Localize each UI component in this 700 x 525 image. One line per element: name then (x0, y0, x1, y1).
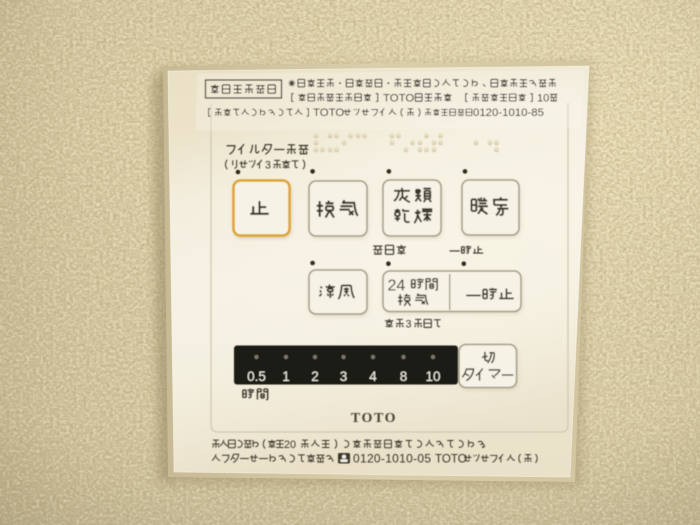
svg-text:0120-1010-85: 0120-1010-85 (473, 107, 544, 119)
svg-text:3: 3 (340, 369, 348, 384)
svg-text:TOTO: TOTO (435, 453, 467, 466)
svg-text:10: 10 (537, 92, 549, 104)
svg-text:4: 4 (369, 369, 377, 384)
svg-text:1: 1 (282, 369, 290, 384)
svg-text:2: 2 (311, 369, 319, 384)
svg-text:10: 10 (425, 369, 440, 384)
svg-text:24: 24 (388, 278, 406, 295)
svg-text:0120-1010-05: 0120-1010-05 (353, 452, 431, 466)
svg-text:TOTO: TOTO (383, 92, 414, 104)
svg-text:0.5: 0.5 (247, 369, 266, 384)
svg-text:3: 3 (406, 319, 412, 331)
svg-text:3: 3 (265, 159, 271, 171)
svg-text:20: 20 (284, 439, 296, 451)
svg-text:8: 8 (400, 369, 408, 384)
svg-text:TOTO: TOTO (313, 107, 344, 119)
svg-text:TOTO: TOTO (351, 411, 397, 426)
